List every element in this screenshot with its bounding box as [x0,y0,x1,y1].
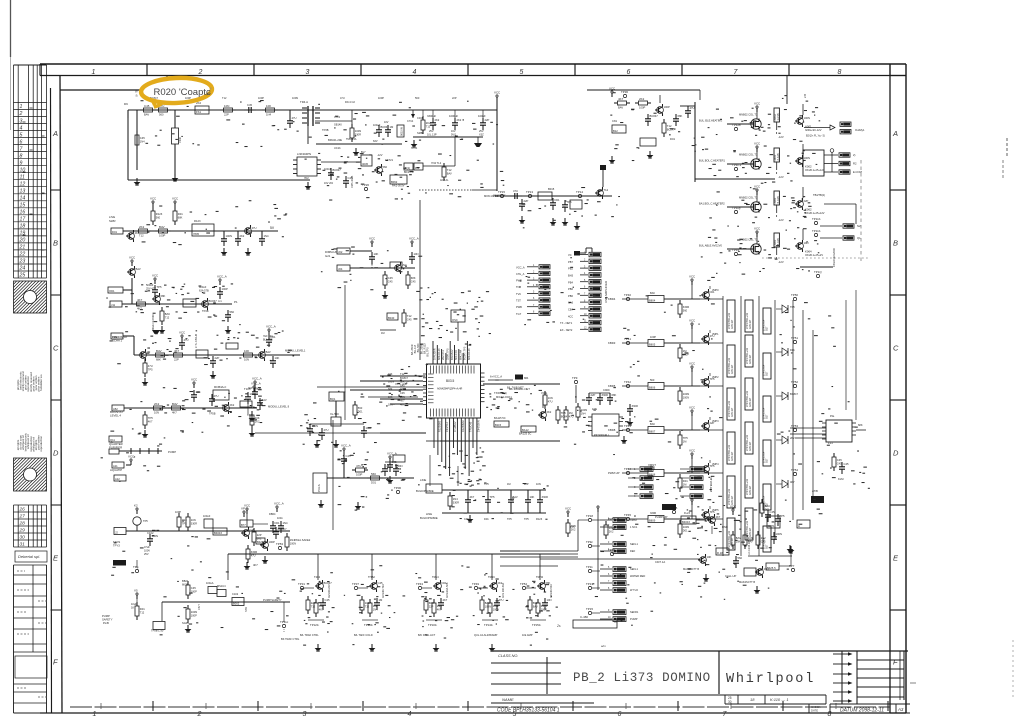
svg-text:STR: STR [244,607,248,612]
svg-text:JMP1: JMP1 [712,332,719,336]
svg-text:4K7: 4K7 [253,563,258,567]
svg-text:CD/7.1A: CD/7.1A [655,560,665,564]
svg-text:2K2: 2K2 [435,118,440,122]
svg-text:B015: B015 [548,187,555,191]
svg-text:2K2: 2K2 [240,234,245,238]
svg-text:BAV: BAV [736,536,741,540]
svg-text:16V: 16V [451,129,456,133]
svg-text:VCC_A: VCC_A [516,265,525,269]
svg-text:4: 4 [408,711,412,718]
svg-text:PUMP: PUMP [168,450,176,454]
svg-text:TP5: TP5 [570,525,575,529]
svg-text:BC847: BC847 [650,114,659,118]
svg-text:PULS: PULS [317,484,321,492]
svg-text:VCC_A: VCC_A [217,275,227,279]
svg-text:P1: P1 [234,300,238,304]
svg-text:OSC: OSC [452,318,458,322]
svg-text:VCC_A/B: VCC_A/B [395,382,407,386]
svg-text:CODE BPLH35133-56104 1: CODE BPLH35133-56104 1 [497,708,560,714]
svg-text:100N: 100N [191,610,198,614]
svg-text:VCC: VCC [179,331,185,335]
svg-text:TP11g: TP11g [732,206,741,210]
svg-text:TP36: TP36 [621,90,628,94]
svg-text:C45: C45 [144,104,150,108]
svg-text:10k.AMP: 10k.AMP [522,633,533,637]
svg-text:100P: 100P [493,604,500,608]
svg-text:BULK/PS080E: BULK/PS080E [416,489,434,493]
svg-text:TP11b: TP11b [812,217,821,221]
svg-text:22P: 22P [452,96,457,100]
svg-text:BAV: BAV [156,349,162,353]
svg-text:1 NC1: 1 NC1 [648,467,656,471]
svg-text:DEF: DEF [630,549,636,553]
svg-text:BAV: BAV [533,604,538,608]
svg-text:PB7: PB7 [568,260,573,264]
svg-text:2: 2 [19,111,23,117]
svg-text:A4B.117: A4B.117 [749,397,752,407]
svg-text:TP50: TP50 [791,293,798,297]
svg-text:TP51: TP51 [791,336,798,340]
svg-text:68K: 68K [161,294,166,298]
svg-text:J02: J02 [338,250,343,254]
svg-text:10N: 10N [224,104,229,108]
svg-text:TP3B: TP3B [322,128,329,132]
svg-text:F: F [53,658,58,667]
svg-text:C377: C377 [197,603,201,610]
svg-text:BA115 5C: BA115 5C [494,416,506,420]
svg-text:R123: R123 [536,517,543,521]
svg-text:10K: 10K [530,495,535,499]
svg-text:1N4: 1N4 [581,411,586,415]
svg-text:A4B.117: A4B.117 [731,364,734,374]
svg-text:BAV.BAV: BAV.BAV [450,349,454,360]
svg-text:LNK304PN: LNK304PN [297,152,311,156]
svg-text:PWM.UP: PWM.UP [608,471,620,475]
svg-text:MS1U4: MS1U4 [217,584,226,588]
svg-text:2K2: 2K2 [790,436,795,440]
svg-text:330R: 330R [602,393,609,397]
svg-text:VCC: VCC [494,91,500,95]
svg-text:Whirlpool: Whirlpool [726,672,815,687]
svg-text:100uF: 100uF [203,514,211,518]
svg-text:PIC900&FLL: PIC900&FLL [594,433,610,437]
svg-text:7805: 7805 [193,232,200,236]
svg-text:330R: 330R [632,404,639,408]
svg-text:C45: C45 [411,279,416,283]
svg-text:C45: C45 [844,462,849,466]
svg-text:C81: C81 [612,119,617,123]
svg-text:1000uF: 1000uF [449,114,459,118]
svg-text:31: 31 [20,542,26,548]
svg-text:C45: C45 [191,586,196,590]
svg-text:R123: R123 [156,212,163,216]
svg-text:2: 2 [197,711,202,718]
svg-text:B425.5: B425.5 [767,566,776,570]
svg-text:B/L TAFF COLD: B/L TAFF COLD [354,633,373,637]
svg-text:MC/B4Z+C: MC/B4Z+C [214,386,226,389]
svg-text:TP5: TP5 [157,285,162,289]
svg-text:100N: 100N [292,96,298,100]
svg-text:47U/BAV: 47U/BAV [453,421,457,432]
svg-text:20: 20 [19,238,26,244]
svg-text:LINE: LINE [420,478,426,482]
svg-text:25V 47V: 25V 47V [146,287,156,291]
svg-text:22P: 22P [485,118,490,122]
svg-text:1N4: 1N4 [453,497,458,501]
svg-text:C45: C45 [388,279,393,283]
svg-text:30: 30 [728,700,732,704]
svg-text:forbidden wo: forbidden wo [39,374,43,391]
svg-text:W TxO: W TxO [630,588,638,592]
svg-text:1N4: 1N4 [283,521,288,525]
svg-text:VCC: VCC [754,185,760,189]
svg-text:15: 15 [20,203,26,209]
svg-text:R123/560: R123/560 [437,420,441,432]
svg-text:R123: R123 [541,604,548,608]
svg-text:T12: T12 [140,610,145,614]
svg-text:Q1: Q1 [857,236,861,240]
svg-text:100N: 100N [776,532,783,536]
svg-text:TP37: TP37 [352,582,359,586]
svg-text:ST1b: ST1b [411,146,418,150]
svg-text:TP150-: TP150- [532,623,541,627]
svg-text:BQ1: BQ1 [330,397,336,401]
svg-text:VCC: VCC [689,275,695,279]
svg-text:25V: 25V [479,129,484,133]
svg-text:LIVE: LIVE [109,215,115,219]
svg-text:TP4B: TP4B [202,309,209,313]
svg-text:KBD3: KBD3 [608,341,616,345]
svg-text:BPA/21-20E: BPA/21-20E [328,138,342,142]
svg-text:8: 8 [838,69,842,76]
svg-text:VCC: VCC [191,378,197,382]
svg-text:D01: D01 [275,521,280,525]
svg-text:B804: B804 [649,299,656,303]
svg-text:100N: 100N [226,234,233,238]
svg-text:8: 8 [828,711,832,718]
svg-text:TP11.2: TP11.2 [732,163,742,167]
svg-text:JMP0: JMP0 [712,288,719,292]
svg-text:4K7: 4K7 [716,515,721,519]
svg-text:TP53: TP53 [276,542,283,546]
svg-text:J2: J2 [115,531,118,535]
svg-text:WATER RED: WATER RED [630,574,645,578]
svg-text:TP11: TP11 [586,565,593,569]
svg-text:C45: C45 [837,461,842,465]
svg-text:VCC: VCC [689,319,695,323]
svg-text:C45: C45 [761,539,766,543]
svg-text:TP5: TP5 [567,200,572,204]
svg-text:TP43: TP43 [416,582,423,586]
svg-text:TP49: TP49 [472,582,479,586]
svg-text:C102: C102 [232,592,239,596]
svg-text:560: 560 [371,472,376,476]
svg-text:SWR: SWR [109,219,116,223]
svg-text:10N: 10N [414,252,419,256]
svg-text:100P: 100P [639,106,646,110]
svg-text:J04: J04 [338,267,343,271]
svg-text:68K: 68K [411,276,416,280]
svg-text:D01: D01 [683,528,688,532]
svg-text:47U: 47U [548,399,553,403]
svg-text:BUL.ISLE.HEATING: BUL.ISLE.HEATING [699,119,722,123]
svg-text:BAV: BAV [447,171,452,175]
svg-text:SMB: SMB [417,131,423,135]
svg-text:18: 18 [20,224,26,230]
svg-text:100P: 100P [664,105,671,109]
svg-text:TP04: TP04 [608,548,615,552]
svg-text:B/L.TP5: B/L.TP5 [426,347,430,357]
svg-text:100N: 100N [804,156,811,160]
svg-text:FL23: FL23 [684,511,690,515]
svg-text:TP53: TP53 [791,424,798,428]
svg-text:SEFR1: SEFR1 [630,610,639,614]
svg-text:2K2: 2K2 [761,536,766,540]
svg-text:TR6C: TR6C [488,575,495,579]
svg-text:1M: 1M [507,482,511,486]
svg-text:6+VCC_A: 6+VCC_A [490,375,502,379]
svg-text:2K2: 2K2 [387,464,392,468]
svg-text:4CC: 4CC [568,314,573,318]
svg-text:-12V: -12V [778,135,784,139]
svg-text:560: 560 [738,556,743,560]
svg-text:A: A [52,129,58,138]
svg-text:100N: 100N [683,525,690,529]
svg-text:A12: A12 [115,477,120,481]
svg-text:VCC: VCC [565,507,571,511]
svg-text:B4003: B4003 [682,520,690,524]
svg-text:1N4: 1N4 [290,538,295,542]
svg-text:VCC_A: VCC_A [409,237,419,241]
svg-text:21: 21 [19,245,26,251]
svg-text:B805: B805 [649,343,656,347]
svg-text:9: 9 [20,160,23,166]
svg-text:PWB: PWB [516,279,522,283]
svg-text:1N4/T12: 1N4/T12 [445,422,449,432]
svg-text:1 NC1: 1 NC1 [630,525,638,529]
svg-text:100P: 100P [378,96,384,100]
svg-text:BA12: BA12 [522,428,529,432]
svg-text:BUL.ABLE.AVG2V0: BUL.ABLE.AVG2V0 [699,244,722,248]
svg-text:K2: K2 [134,504,138,508]
svg-text:VCC: VCC [689,449,695,453]
svg-text:T105: T105 [244,387,251,391]
svg-text:OKLB.1+25+124: OKLB.1+25+124 [805,168,825,172]
svg-text:BA1.BOL.C.HEATER2: BA1.BOL.C.HEATER2 [699,202,725,206]
svg-text:TP5: TP5 [561,411,566,415]
svg-text:330R: 330R [650,511,656,515]
svg-text:10N: 10N [244,358,249,362]
svg-text:F3/LOVEN.2000: F3/LOVEN.2000 [832,248,836,267]
svg-text:C45: C45 [837,458,842,462]
svg-text:B806: B806 [649,386,656,390]
svg-text:VCC: VCC [689,362,695,366]
svg-text:10: 10 [20,167,26,173]
svg-text:N2: N2 [857,224,861,228]
svg-text:CLASS NO.: CLASS NO. [498,654,518,658]
svg-text:OKLB.1+25+12V: OKLB.1+25+12V [805,211,825,215]
svg-text:4045: 4045 [362,162,369,166]
svg-text:C: C [893,344,899,353]
svg-text:OKLB.1+25+2V: OKLB.1+25+2V [805,253,823,257]
svg-text:CHL_A: CHL_A [516,272,525,276]
svg-text:560.1N4: 560.1N4 [454,350,458,360]
svg-text:D: D [893,449,899,458]
svg-text:BAV: BAV [159,225,165,229]
svg-text:LEVEL 4: LEVEL 4 [110,414,121,418]
svg-text:TX - NET1: TX - NET1 [560,321,573,325]
svg-text:1-R1B: 1-R1B [777,113,780,120]
svg-text:B: B [53,239,58,248]
svg-text:a/m: a/m [601,644,606,648]
svg-text:4K7: 4K7 [470,495,475,499]
svg-text:TNB: TNB [516,285,521,289]
svg-text:22P: 22P [591,393,596,397]
svg-text:ACS/10A-50B: ACS/10A-50B [446,582,449,598]
svg-text:PB_2 Li373 DOMINO: PB_2 Li373 DOMINO [573,671,711,685]
svg-text:KBD8: KBD8 [608,428,616,432]
svg-text:A0N4Z84PQ5P4+A.4R: A0N4Z84PQ5P4+A.4R [437,388,463,391]
svg-text:B12: B12 [613,129,618,133]
svg-text:47U: 47U [252,226,257,230]
svg-text:4K7: 4K7 [148,419,153,423]
svg-text:TP15: TP15 [586,607,593,611]
svg-text:TRH4: TRH4 [536,575,544,579]
svg-text:16V 20J: 16V 20J [324,182,334,185]
svg-text:100P: 100P [258,96,264,100]
svg-text:EX - NET2: EX - NET2 [560,328,573,332]
svg-text:B002: B002 [233,602,240,606]
svg-text:SG05: SG05 [182,621,189,625]
svg-text:560: 560 [230,310,235,314]
svg-text:32RL+9C-12V: 32RL+9C-12V [805,128,822,132]
svg-text:BAV: BAV [165,312,170,316]
svg-text:AQUATIP: AQUATIP [110,468,122,472]
svg-text:47U: 47U [148,364,153,368]
svg-text:TP5/C45: TP5/C45 [469,421,473,432]
svg-text:ACP.AL: ACP.AL [440,179,449,182]
svg-text:G21: G21 [325,254,331,258]
svg-text:10N.330R: 10N.330R [433,348,437,360]
svg-text:VCC: VCC [152,274,158,278]
svg-text:6: 6 [20,139,23,145]
svg-text:TP100-: TP100- [428,623,437,627]
svg-text:10N: 10N [191,518,196,522]
svg-text:Deberial spl.: Deberial spl. [18,554,40,559]
svg-text:68K: 68K [178,215,183,219]
svg-text:4K7: 4K7 [137,298,143,302]
svg-text:47U: 47U [292,116,297,120]
svg-text:TST: TST [516,299,521,303]
svg-text:4K7: 4K7 [790,480,795,484]
svg-text:B77: B77 [241,523,246,527]
svg-text:Z-A1B: Z-A1B [777,153,780,160]
svg-text:VCC: VCC [689,406,695,410]
svg-text:47U: 47U [324,428,329,432]
svg-text:2K2.47U: 2K2.47U [441,350,445,360]
svg-text:23: 23 [19,259,26,265]
svg-text:T12: T12 [400,372,405,376]
svg-text:TP5: TP5 [143,519,148,523]
svg-text:TP9: TP9 [572,376,578,380]
svg-text:D01: D01 [765,507,770,511]
svg-text:1N4: 1N4 [264,234,269,238]
svg-text:560: 560 [650,378,655,382]
svg-text:13: 13 [20,189,26,195]
svg-text:2K2: 2K2 [457,118,462,122]
svg-text:TP5: TP5 [148,416,153,420]
svg-text:TP45: TP45 [624,513,631,517]
svg-text:560: 560 [683,308,688,312]
svg-text:D01: D01 [555,198,560,202]
svg-text:4K7: 4K7 [618,97,624,101]
svg-text:27: 27 [19,514,26,520]
svg-text:BC847.TP5: BC847.TP5 [463,346,467,360]
svg-text:K:110 --- 1: K:110 --- 1 [770,697,789,702]
svg-text:R123: R123 [194,219,201,223]
svg-text:63A 57B: 63A 57B [199,289,209,293]
svg-text:BULK/PS080E: BULK/PS080E [420,516,438,520]
svg-text:VCC_A: VCC_A [251,382,261,386]
svg-text:330R: 330R [251,550,258,554]
svg-text:10N: 10N [154,411,159,415]
svg-text:B: B [893,239,898,248]
svg-text:QUL.44.AL205/AMP: QUL.44.AL205/AMP [474,633,498,637]
svg-text:DM7+3G/B: DM7+3G/B [351,175,354,188]
svg-text:KLM: KLM [838,477,844,481]
svg-text:VCC: VCC [128,455,134,459]
svg-text:22P: 22P [224,113,229,117]
svg-text:4K7: 4K7 [172,411,177,415]
svg-text:2): 2) [853,153,856,157]
svg-text:C45: C45 [247,103,252,107]
svg-text:A4B.117: A4B.117 [749,485,752,495]
svg-text:B17: B17 [766,544,769,549]
svg-text:B17: B17 [766,371,769,376]
svg-text:T12: T12 [165,315,170,319]
svg-text:C45: C45 [770,510,775,514]
svg-text:25V: 25V [429,129,434,133]
svg-text:4K7: 4K7 [443,598,448,602]
svg-text:BAV: BAV [650,422,655,426]
svg-text:560: 560 [358,406,363,410]
svg-text:100N: 100N [804,116,811,120]
svg-text:4K7: 4K7 [282,527,287,531]
svg-text:47U: 47U [499,598,504,602]
svg-text:10uF: 10uF [131,602,137,606]
svg-text:2K2: 2K2 [154,402,160,406]
svg-text:C471: C471 [768,524,775,528]
svg-text:TP14: TP14 [576,190,583,194]
svg-text:-12V: -12V [778,260,784,264]
svg-text:TP15: TP15 [498,190,505,194]
svg-text:2: 2 [198,69,203,76]
svg-text:100P: 100P [159,234,166,238]
svg-text:J11: J11 [111,303,116,307]
svg-text:B17: B17 [766,326,769,331]
svg-text:3: 3 [303,711,307,718]
svg-text:F: F [893,658,898,667]
svg-text:B17: B17 [766,458,769,463]
svg-text:30: 30 [20,535,26,541]
svg-text:100N: 100N [355,129,362,133]
svg-text:TP120-: TP120- [310,623,319,627]
svg-text:10K: 10K [244,349,249,353]
svg-text:47U: 47U [214,394,219,398]
svg-text:2s: 2s [556,624,561,628]
svg-text:VCC_A: VCC_A [387,452,397,456]
svg-text:MODUL.LEVEL.9: MODUL.LEVEL.9 [268,405,290,409]
